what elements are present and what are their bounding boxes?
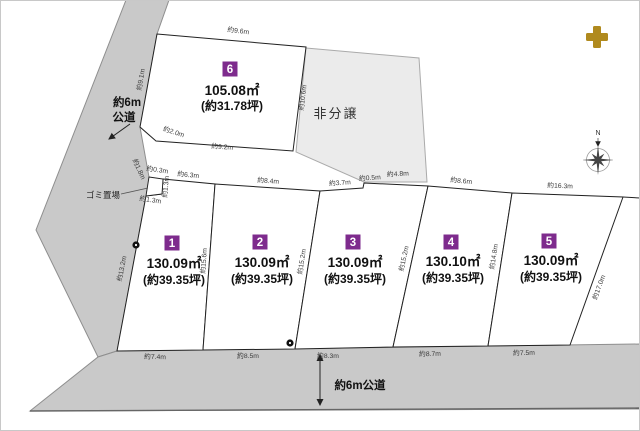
lot-6-tsubo: (約31.78坪) — [201, 98, 263, 113]
lot-plan-diagram: 6 1 2 3 4 5 105.08㎡ (約31.78坪) 130.09㎡ (約… — [0, 0, 640, 431]
lot-2-tsubo: (約39.35坪) — [231, 271, 293, 286]
lot-2-area: 130.09㎡ — [235, 254, 290, 270]
lot-4-tsubo: (約39.35坪) — [422, 270, 484, 285]
lot-1-area: 130.09㎡ — [147, 255, 202, 271]
bottom-road-label: 約6m公道 — [334, 378, 386, 392]
lot-3-number: 3 — [350, 237, 356, 249]
lot-2-number: 2 — [257, 237, 263, 249]
lot-1-badge: 1 — [165, 236, 180, 251]
lot-5-number: 5 — [546, 236, 553, 248]
lot-1-number: 1 — [169, 238, 176, 250]
lot-3-area: 130.09㎡ — [328, 254, 383, 270]
dim-lot1-bottom: 約7.4m — [144, 352, 166, 361]
dim-lot5-bottom: 約7.5m — [513, 348, 535, 357]
lot-5-tsubo: (約39.35坪) — [520, 269, 582, 284]
dim-lot4-bottom: 約8.7m — [419, 349, 441, 358]
lot-5-area: 130.09㎡ — [524, 252, 579, 268]
lot-6-area: 105.08㎡ — [205, 82, 260, 98]
lot-3-tsubo: (約39.35坪) — [324, 271, 386, 286]
pole-icon — [286, 339, 293, 346]
lot-3-badge: 3 — [346, 235, 361, 250]
lot-5-badge: 5 — [542, 234, 557, 249]
left-road-label-line1: 約6m — [113, 95, 141, 109]
not-for-sale-label: 非分譲 — [313, 106, 358, 121]
lot-4-area: 130.10㎡ — [426, 253, 481, 269]
lot-4-number: 4 — [448, 237, 455, 249]
lot-1-tsubo: (約39.35坪) — [143, 272, 205, 287]
dim-lot2-bottom: 約8.5m — [237, 351, 259, 360]
lot-4-badge: 4 — [444, 235, 459, 250]
lot-6-number: 6 — [227, 64, 233, 76]
lot-2-badge: 2 — [253, 235, 268, 250]
left-road-label-line2: 公道 — [113, 110, 136, 124]
lot-6-badge: 6 — [223, 62, 238, 77]
compass-north-label: N — [595, 130, 600, 137]
garbage-area-region — [146, 177, 163, 196]
pole-icon — [132, 241, 139, 248]
garbage-label: ゴミ置場 — [86, 190, 121, 200]
